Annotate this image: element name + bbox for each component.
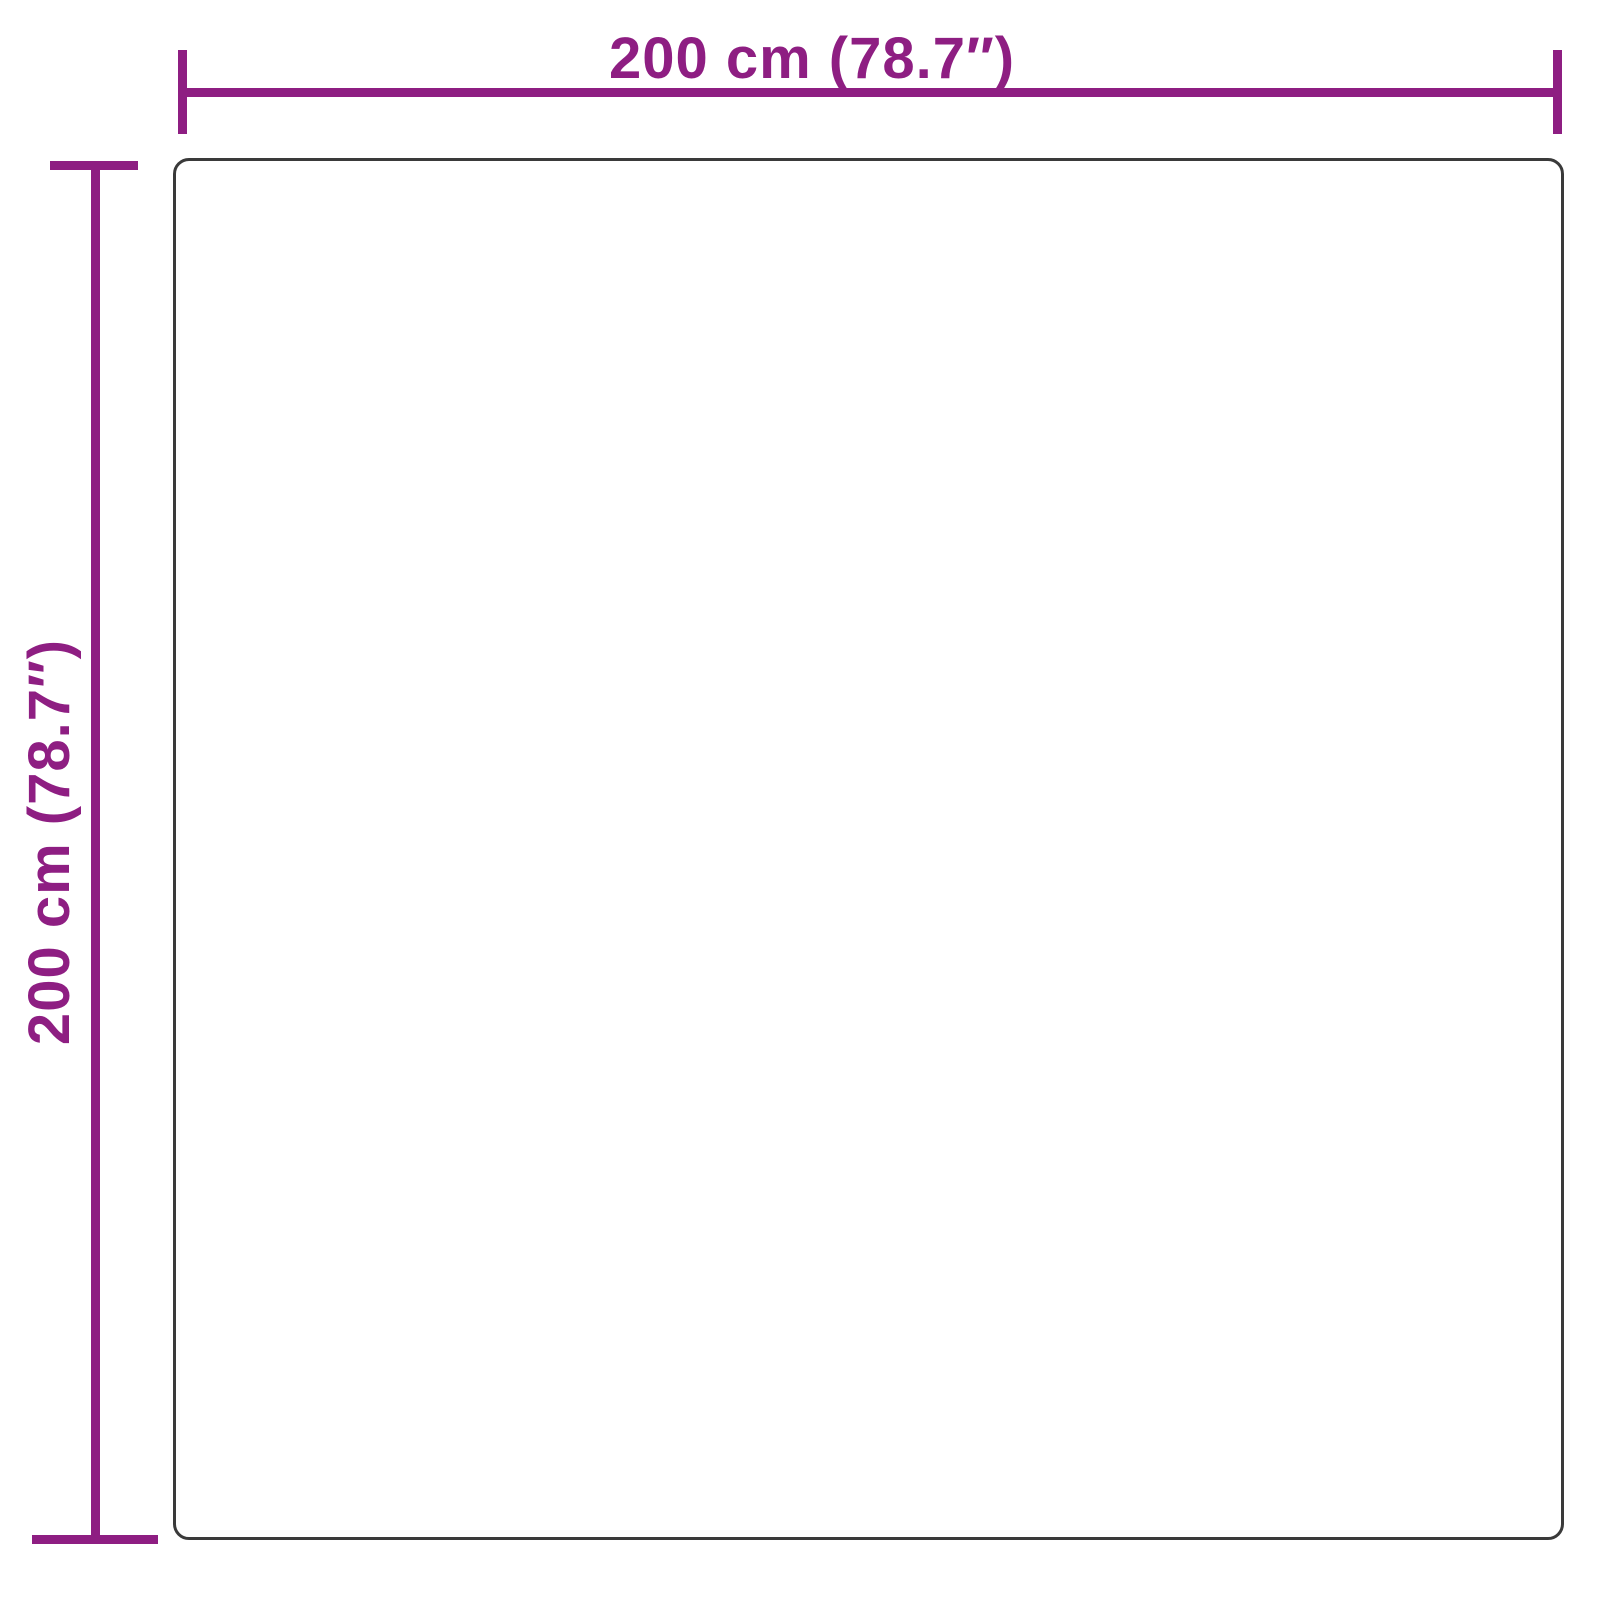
height-dimension-line — [91, 161, 100, 1544]
width-dimension-tick-right — [1553, 50, 1562, 134]
height-dimension-tick-bottom — [32, 1535, 158, 1544]
height-dimension-label: 200 cm (78.7″) — [21, 639, 79, 1045]
width-dimension-label: 200 cm (78.7″) — [609, 30, 1015, 88]
dimension-diagram: 200 cm (78.7″) 200 cm (78.7″) — [0, 0, 1600, 1600]
product-outline — [173, 158, 1564, 1540]
